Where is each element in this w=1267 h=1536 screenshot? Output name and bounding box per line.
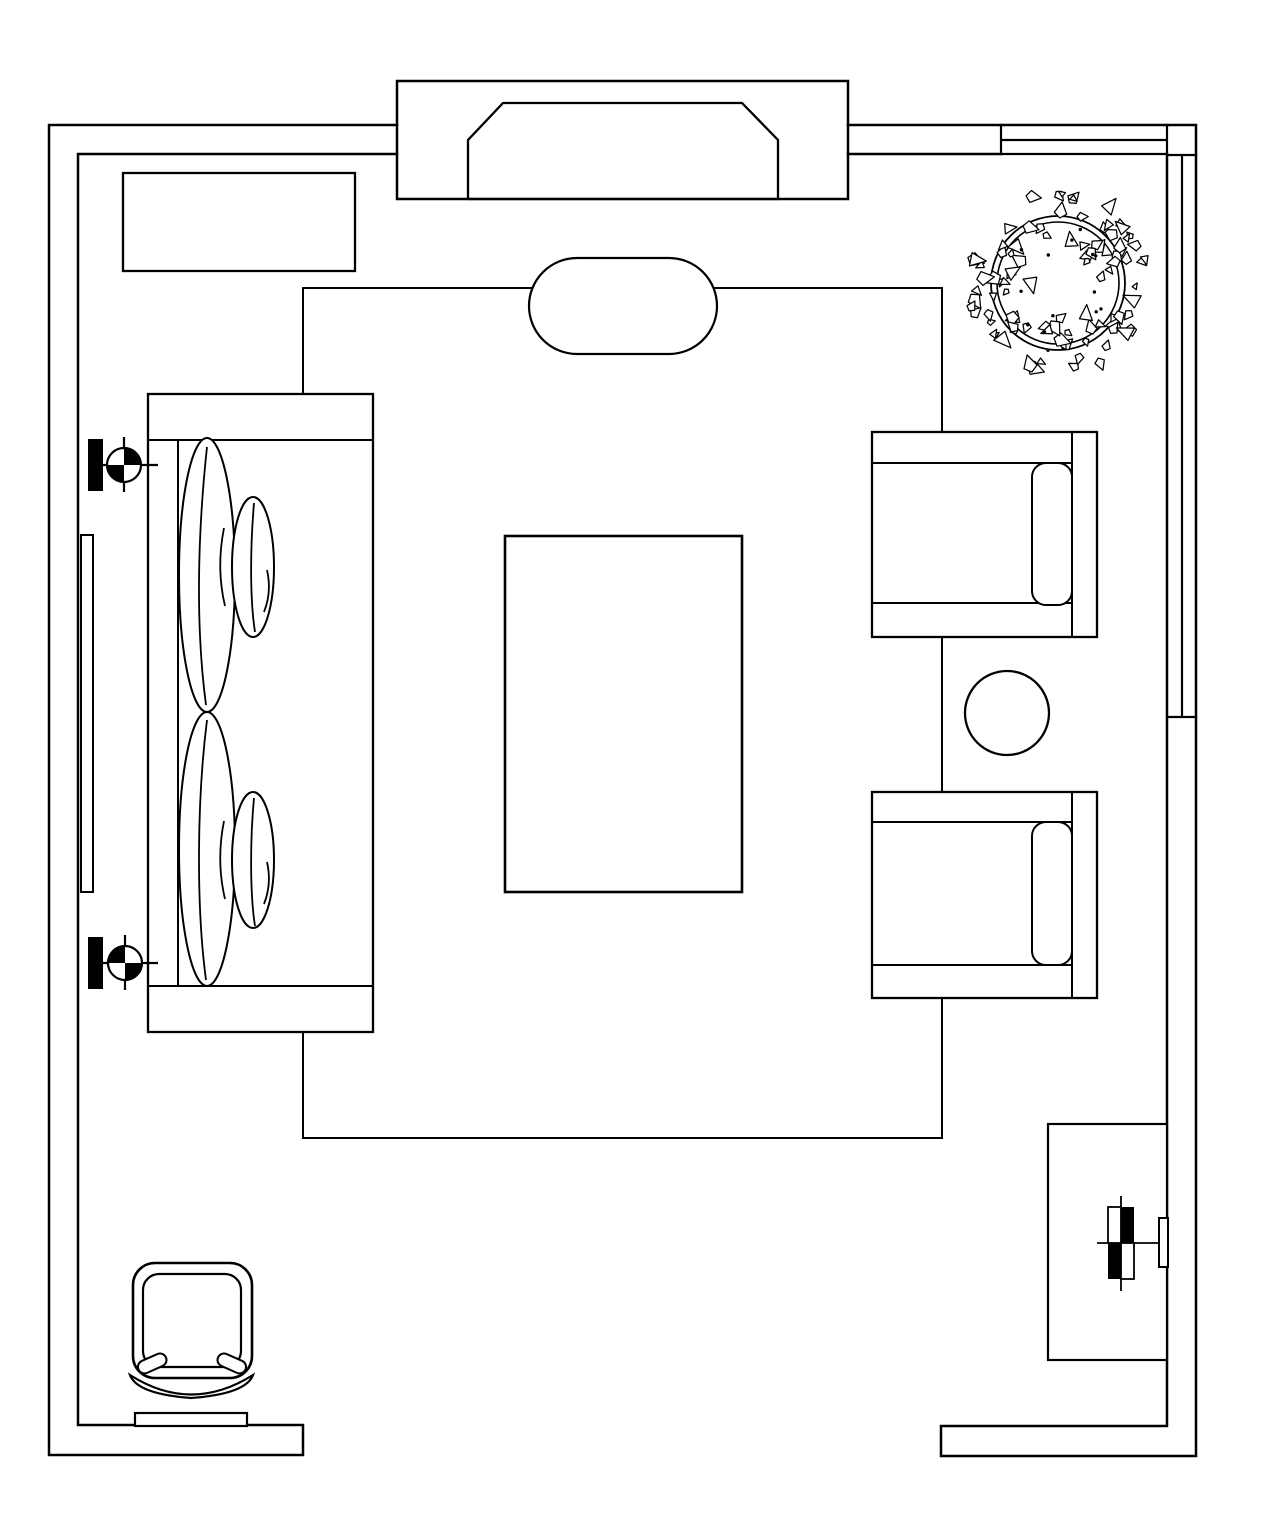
sofa-back-cushion — [179, 712, 235, 986]
potted-plant — [967, 191, 1148, 375]
sofa-back-cushion — [179, 438, 235, 712]
armchair-back-cushion — [1032, 463, 1072, 605]
coffee-table — [505, 536, 742, 892]
ottoman-oval — [529, 258, 717, 354]
sofa — [148, 394, 373, 1032]
floor-plan-canvas — [0, 0, 1267, 1536]
armchair-bottom — [872, 792, 1097, 998]
floor-plan-page — [0, 0, 1267, 1536]
threshold — [135, 1413, 247, 1426]
armchair-back-cushion — [1032, 822, 1072, 965]
hearth — [468, 103, 778, 199]
armchair-top — [872, 432, 1097, 637]
bay-recess — [397, 81, 848, 199]
door-jamb — [1159, 1218, 1168, 1267]
sliding-door-panel — [81, 535, 93, 892]
side-table — [965, 671, 1049, 755]
console-cabinet — [123, 173, 355, 271]
top-window — [1001, 125, 1167, 154]
right-window — [1167, 155, 1196, 717]
corner-chair — [130, 1263, 253, 1398]
